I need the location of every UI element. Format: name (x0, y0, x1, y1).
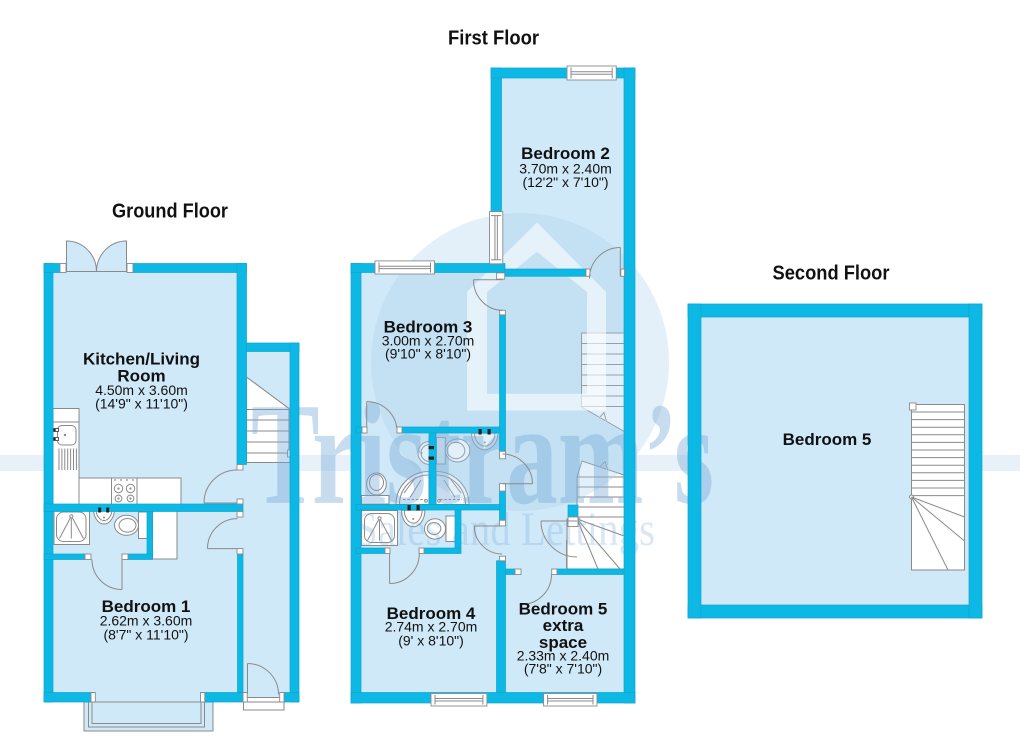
svg-text:(14'9" x 11'10"): (14'9" x 11'10") (95, 396, 188, 412)
svg-text:Ground Floor: Ground Floor (112, 200, 228, 223)
svg-text:(12'2" x 7'10"): (12'2" x 7'10") (522, 174, 608, 190)
svg-text:(7'8" x 7'10"): (7'8" x 7'10") (524, 661, 602, 677)
svg-text:(9' x 8'10"): (9' x 8'10") (398, 633, 464, 649)
svg-text:Bedroom 5: Bedroom 5 (783, 430, 872, 449)
svg-text:Second Floor: Second Floor (773, 262, 890, 285)
svg-text:(8'7" x 11'10"): (8'7" x 11'10") (103, 627, 188, 643)
svg-text:(9'10" x 8'10"): (9'10" x 8'10") (385, 345, 471, 361)
svg-text:First Floor: First Floor (448, 26, 539, 49)
